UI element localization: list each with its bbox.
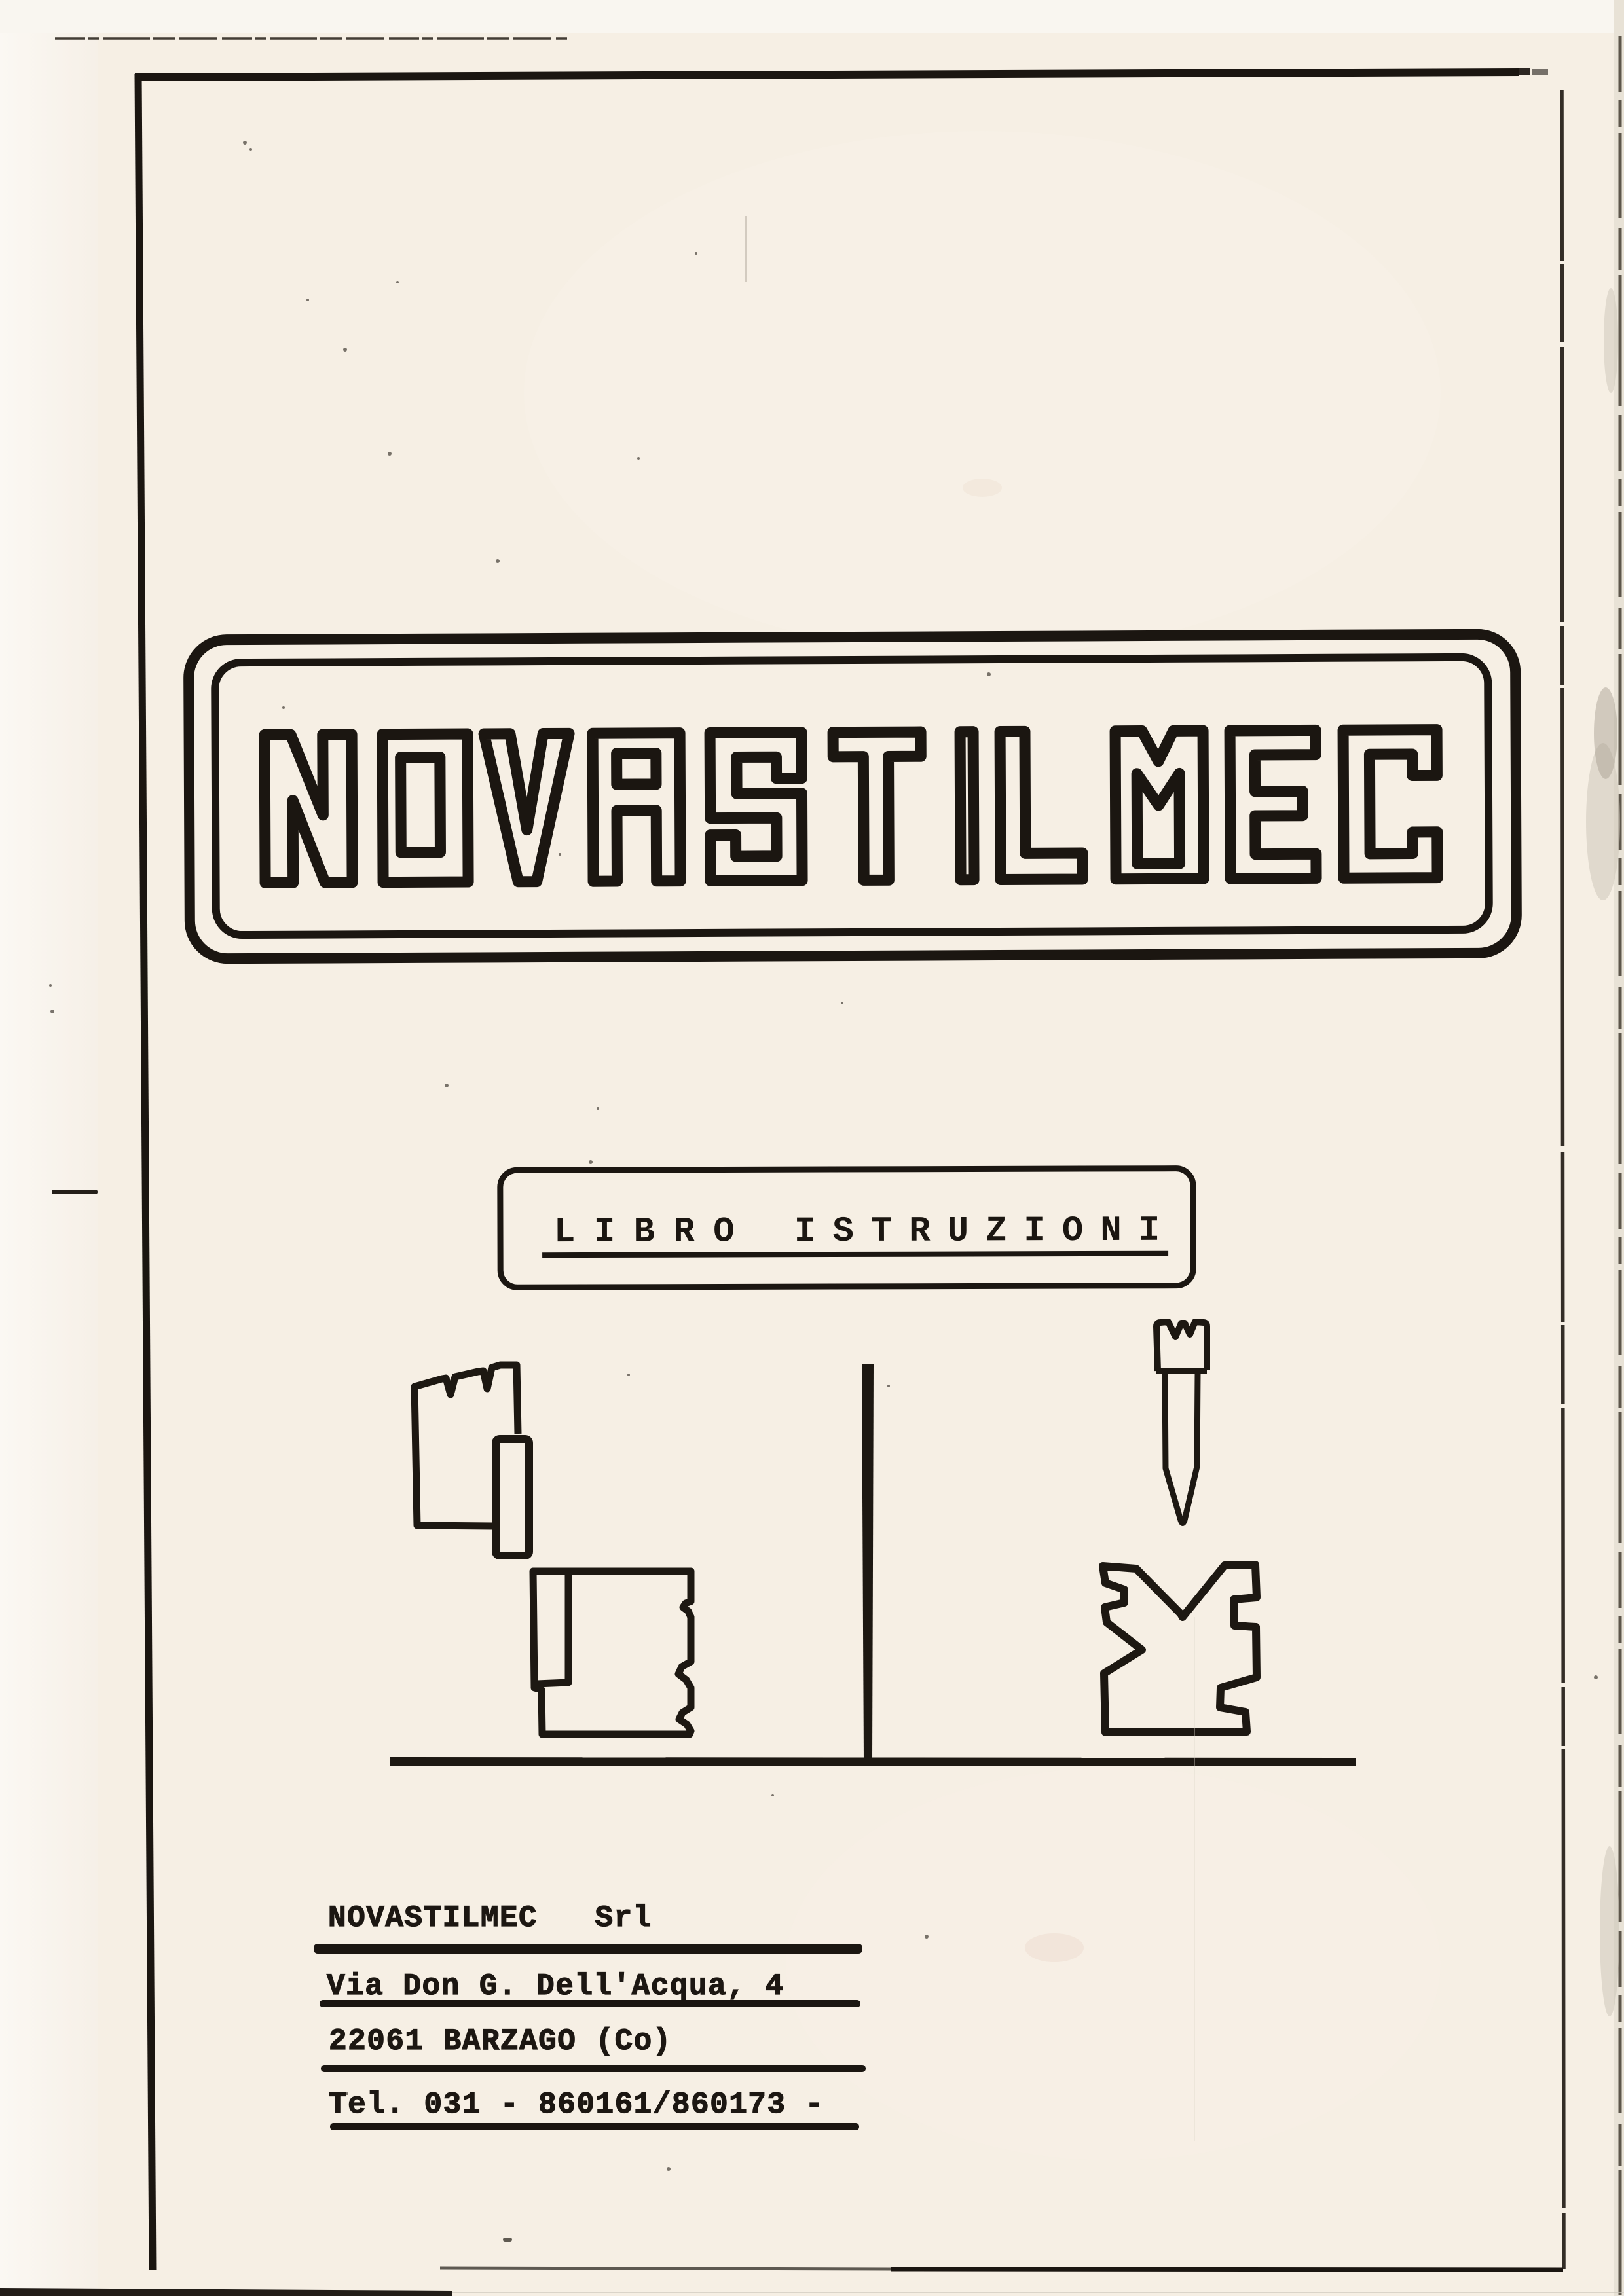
- svg-text:I S T R U Z I O N I: I S T R U Z I O N I: [794, 1211, 1158, 1252]
- svg-text:L I B R O: L I B R O: [554, 1212, 733, 1252]
- svg-text:Via Don G. Dell'Acqua, 4: Via Don G. Dell'Acqua, 4: [327, 1969, 784, 2003]
- svg-text:22061 BARZAGO (Co): 22061 BARZAGO (Co): [329, 2024, 672, 2058]
- svg-text:NOVASTILMEC Srl: NOVASTILMEC Srl: [328, 1901, 652, 1935]
- svg-text:Tel. 031 - 860161/860173 -: Tel. 031 - 860161/860173 -: [329, 2088, 824, 2122]
